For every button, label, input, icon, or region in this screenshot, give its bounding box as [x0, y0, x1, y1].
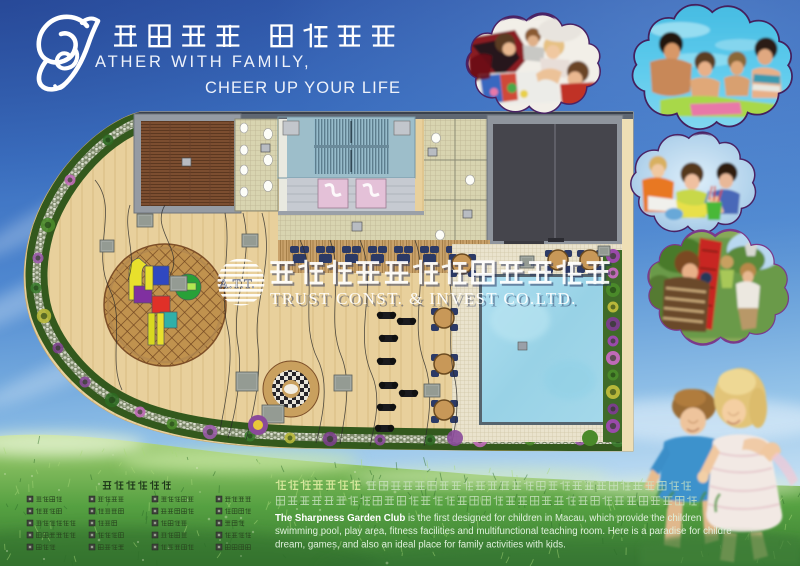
- svg-text:The Sharpness Garden Club is t: The Sharpness Garden Club is the first d…: [275, 513, 701, 524]
- svg-text:ATHER WITH FAMILY,: ATHER WITH FAMILY,: [95, 53, 311, 71]
- svg-text:dream, games, and also an idea: dream, games, and also an ideal place fo…: [275, 540, 566, 551]
- svg-text:A.T.T.: A.T.T.: [219, 276, 255, 291]
- svg-text:swimming pool, play area, fitn: swimming pool, play area, fitness facili…: [275, 526, 732, 537]
- svg-text:TRUST CONST. & INVEST CO.LTD.: TRUST CONST. & INVEST CO.LTD.: [270, 289, 577, 308]
- svg-text:CHEER UP YOUR LIFE: CHEER UP YOUR LIFE: [205, 79, 401, 97]
